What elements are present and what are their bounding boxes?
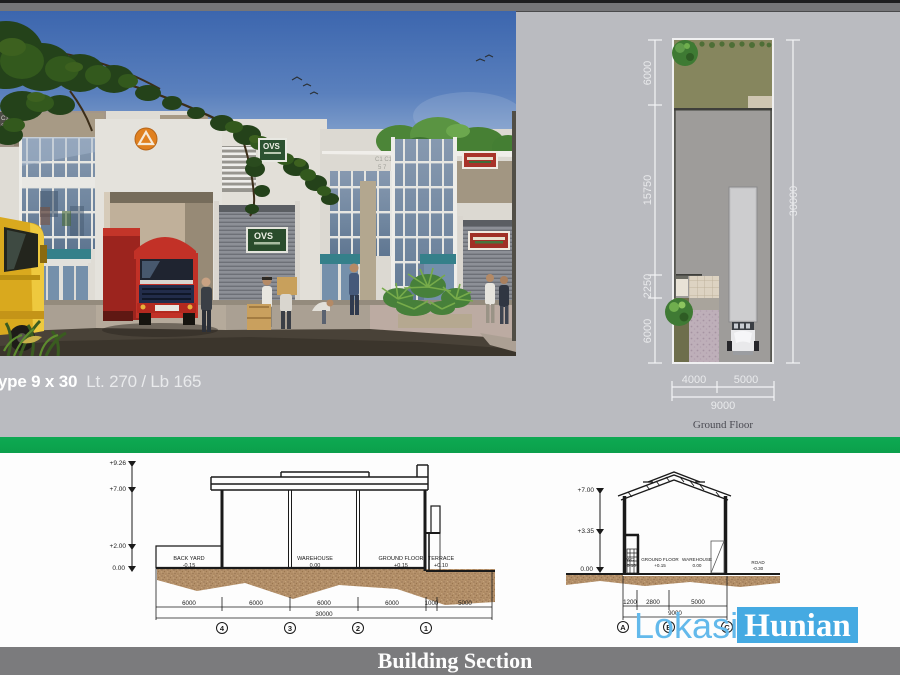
svg-text:0.00: 0.00 <box>112 565 125 572</box>
svg-text:0.00: 0.00 <box>580 566 593 573</box>
svg-text:1000: 1000 <box>425 600 439 607</box>
svg-text:+2.00: +2.00 <box>110 543 127 550</box>
svg-text:-0.15: -0.15 <box>183 563 196 569</box>
svg-text:30000: 30000 <box>788 186 800 217</box>
svg-text:+0.15: +0.15 <box>394 563 408 569</box>
svg-text:-0.30: -0.30 <box>753 566 764 571</box>
svg-text:+3.35: +3.35 <box>578 528 595 535</box>
svg-text:+0.15: +0.15 <box>654 563 666 568</box>
svg-text:5000: 5000 <box>734 374 758 386</box>
svg-text:A: A <box>620 623 626 632</box>
svg-text:6000: 6000 <box>182 600 196 607</box>
svg-text:BACK YARD: BACK YARD <box>173 556 204 562</box>
svg-text:5 7: 5 7 <box>378 165 387 171</box>
svg-text:0.00: 0.00 <box>310 563 321 569</box>
svg-text:GROUND FLOOR: GROUND FLOOR <box>379 556 424 562</box>
svg-text:+9.26: +9.26 <box>110 460 127 467</box>
svg-text:1: 1 <box>424 624 428 633</box>
svg-text:3: 3 <box>288 624 292 633</box>
svg-text:+7.00: +7.00 <box>578 487 595 494</box>
svg-text:30000: 30000 <box>315 611 333 618</box>
svg-text:6000: 6000 <box>317 600 331 607</box>
svg-text:15750: 15750 <box>642 175 654 206</box>
svg-text:5000: 5000 <box>458 600 472 607</box>
svg-text:+0.10: +0.10 <box>434 563 448 569</box>
svg-text:OVS: OVS <box>263 142 281 151</box>
svg-text:WAREHOUSE: WAREHOUSE <box>297 556 333 562</box>
svg-text:2250: 2250 <box>642 274 654 298</box>
svg-text:WAREHOUSE: WAREHOUSE <box>682 557 712 562</box>
svg-text:ROAD: ROAD <box>751 560 765 565</box>
svg-text:Ground Floor: Ground Floor <box>693 419 754 431</box>
svg-text:WC: WC <box>626 557 634 562</box>
svg-text:6000: 6000 <box>249 600 263 607</box>
svg-text:+7.00: +7.00 <box>110 486 127 493</box>
svg-text:4: 4 <box>220 624 225 633</box>
svg-text:2: 2 <box>356 624 360 633</box>
svg-text:OVS: OVS <box>254 231 273 241</box>
svg-text:6000: 6000 <box>642 319 654 343</box>
svg-text:TERRACE: TERRACE <box>428 556 455 562</box>
svg-text:6000: 6000 <box>385 600 399 607</box>
svg-text:6000: 6000 <box>642 61 654 85</box>
svg-text:0.00: 0.00 <box>693 563 702 568</box>
svg-text:GROUND FLOOR: GROUND FLOOR <box>641 557 679 562</box>
svg-text:C1 C1: C1 C1 <box>375 157 393 163</box>
svg-text:9000: 9000 <box>711 400 735 412</box>
svg-text:4000: 4000 <box>682 374 706 386</box>
svg-text:+0.10: +0.10 <box>624 563 636 568</box>
